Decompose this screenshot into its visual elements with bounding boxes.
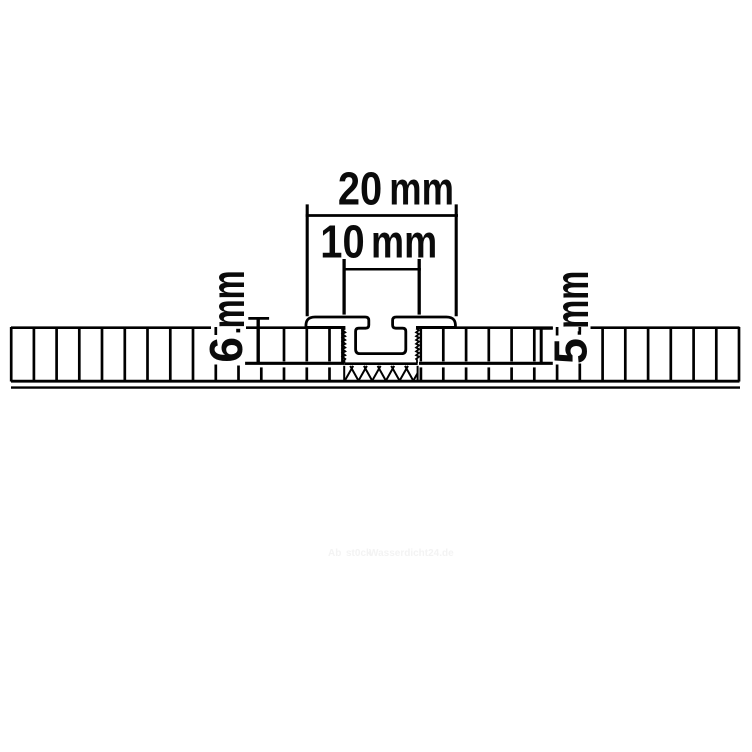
- svg-text:mm: mm: [389, 162, 454, 214]
- svg-text:mm: mm: [546, 271, 598, 329]
- svg-text:5: 5: [545, 338, 597, 364]
- svg-text:10: 10: [320, 217, 364, 269]
- svg-text:20: 20: [338, 163, 382, 215]
- svg-text:mm: mm: [371, 215, 437, 267]
- svg-text:Wasserdicht24.de: Wasserdicht24.de: [369, 548, 454, 559]
- svg-text:6: 6: [200, 337, 252, 363]
- svg-text:Ab: Ab: [328, 548, 341, 559]
- svg-text:mm: mm: [202, 270, 254, 328]
